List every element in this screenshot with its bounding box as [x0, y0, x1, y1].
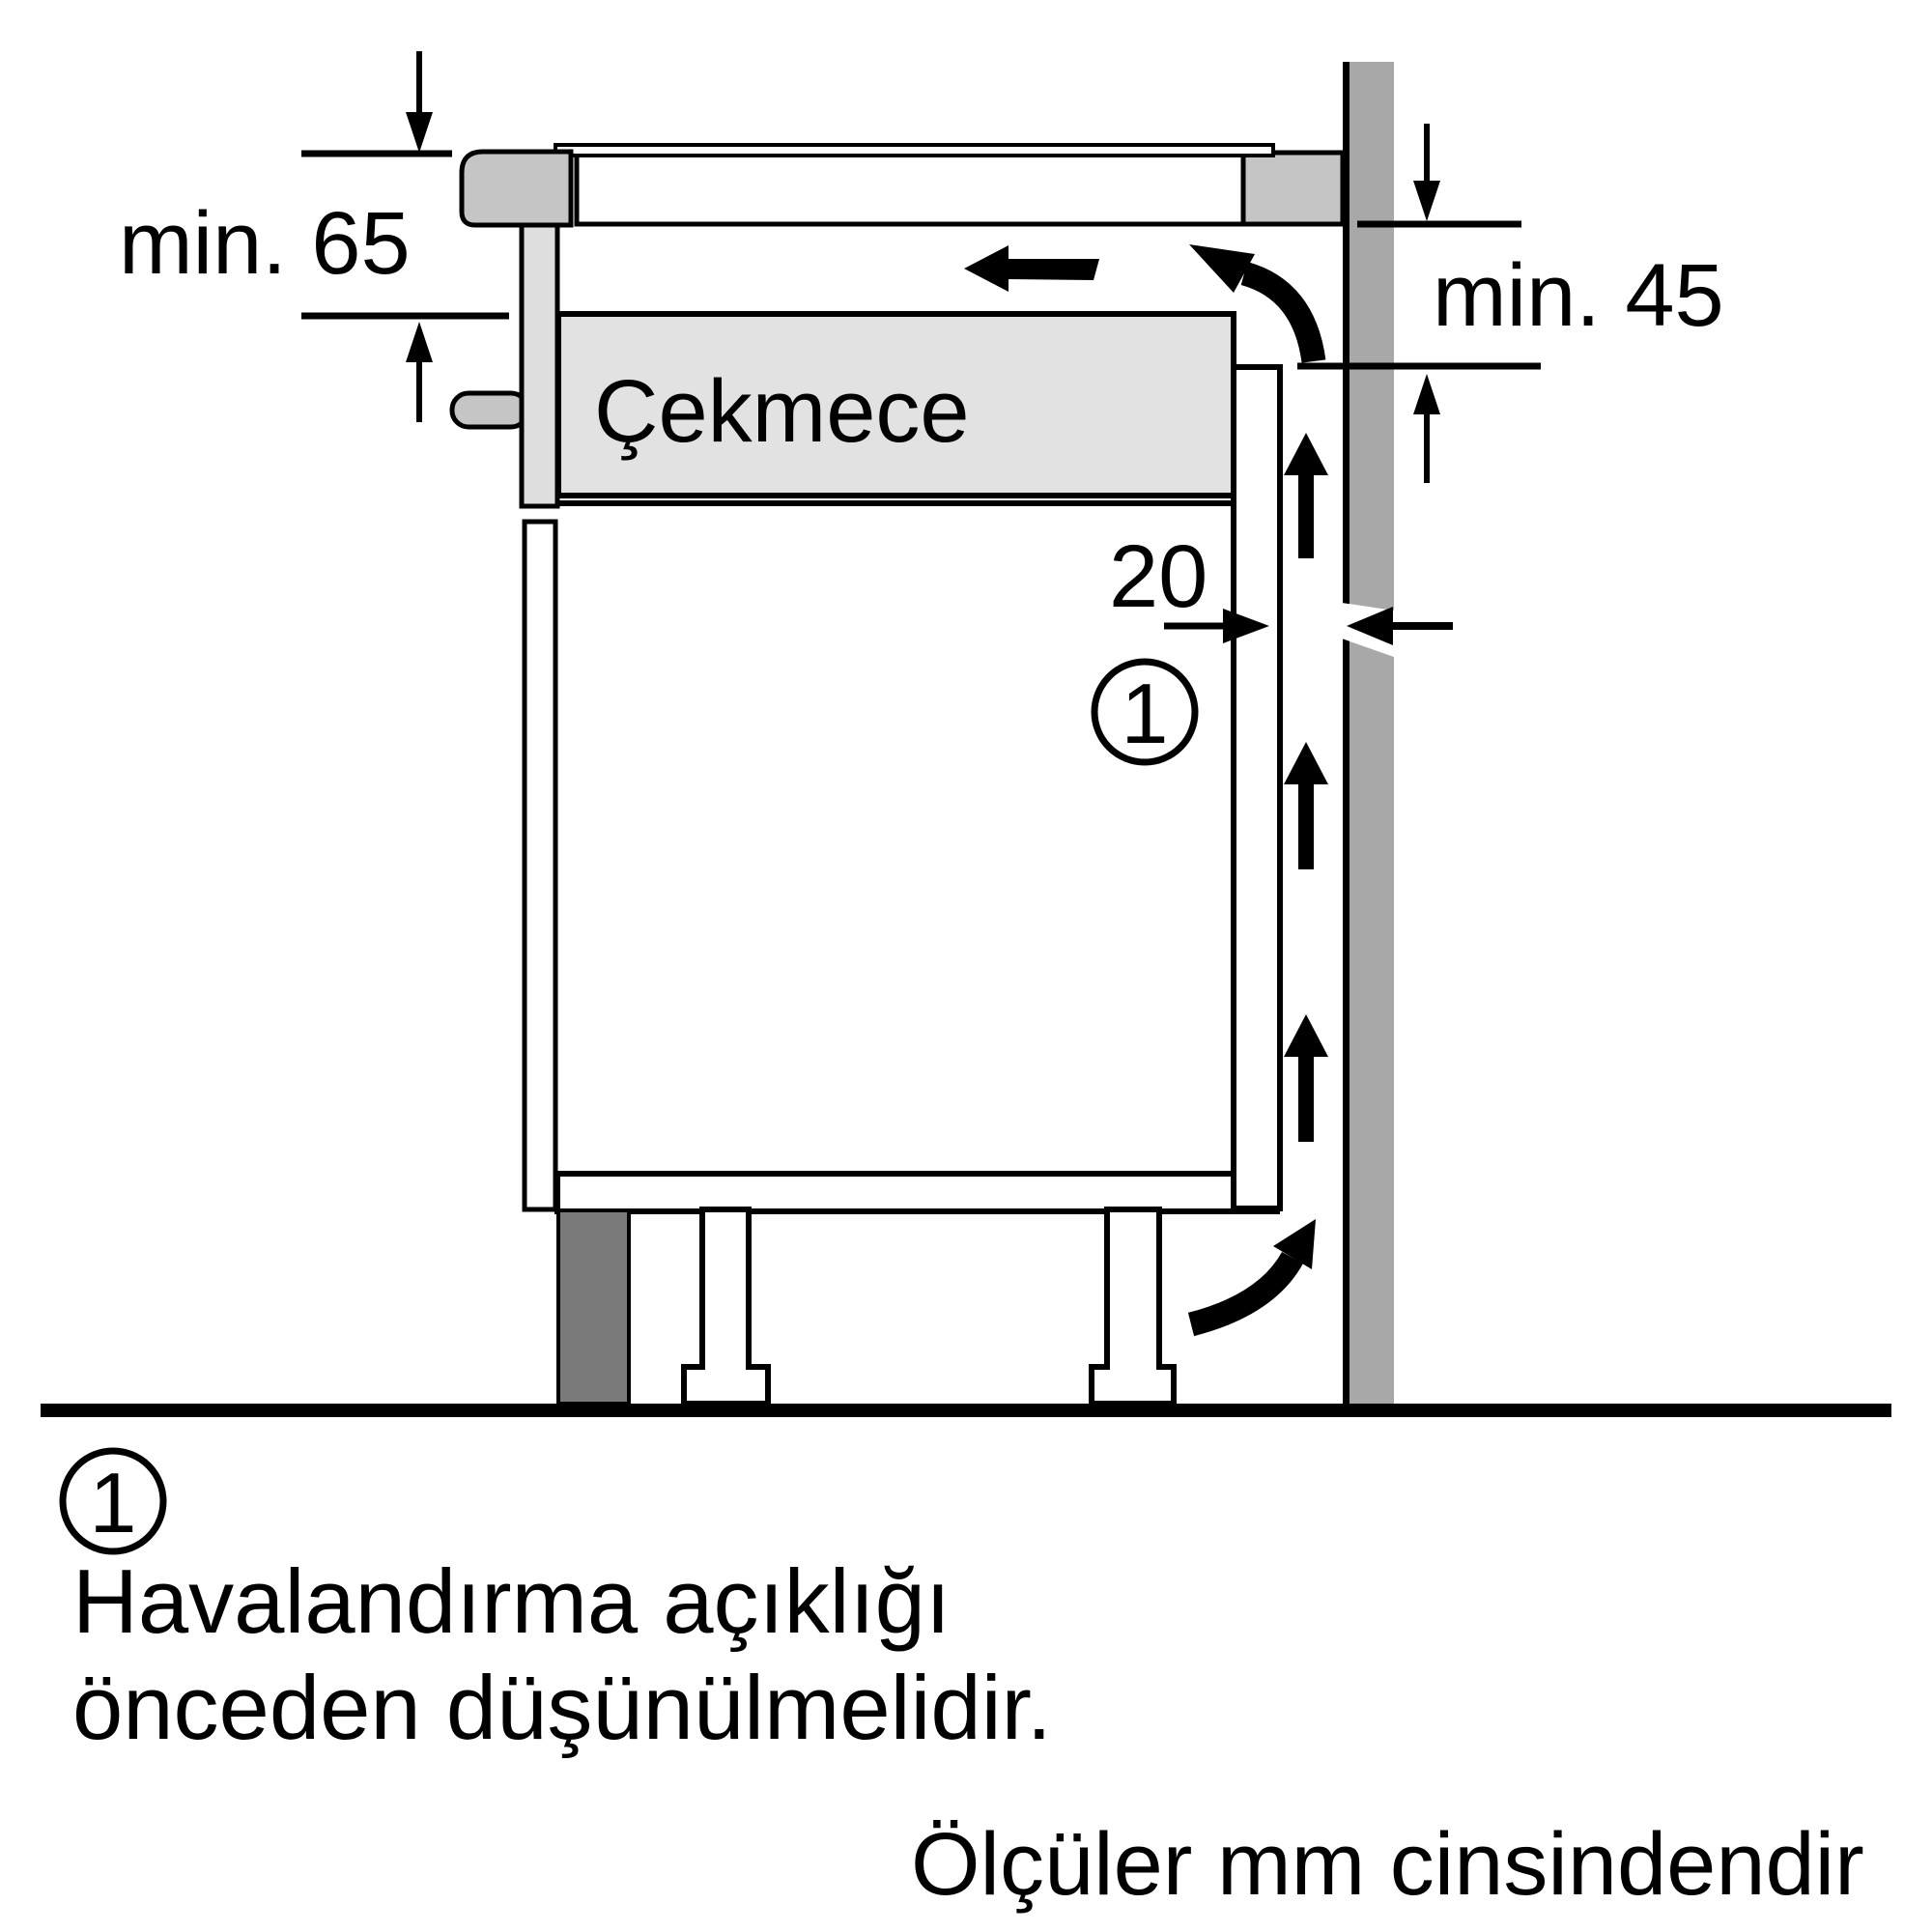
arrow-up-head-icon — [1413, 374, 1440, 414]
arrow-down-head-icon — [1413, 181, 1440, 221]
airflow-arrow-up-3-head-icon — [1284, 1014, 1328, 1057]
leg-front — [684, 1209, 768, 1404]
hob-body — [577, 155, 1346, 224]
leg-rear — [1092, 1209, 1174, 1404]
cabinet-side-panel-upper — [522, 225, 557, 506]
dim-min45-label: min. 45 — [1433, 246, 1724, 345]
mounting-peg — [452, 393, 527, 427]
airflow-arrow-up-1-icon — [1298, 473, 1314, 558]
legend-note-line-2: önceden düşünülmelidir. — [72, 1657, 1052, 1758]
hob-installation-diagram: Çekmece min. 65 min. 45 20 — [0, 0, 1932, 1932]
legend-note-line-1: Havalandırma açıklığı — [72, 1550, 951, 1652]
airflow-arrow-up-2-icon — [1298, 782, 1314, 869]
plinth-board — [558, 1210, 629, 1404]
callout-1-marker: 1 — [1094, 662, 1195, 762]
hob-rear-trim — [1243, 153, 1343, 224]
airflow-arrow-up-3-icon — [1298, 1055, 1314, 1142]
ground-line — [41, 1404, 1891, 1417]
cabinet-back-panel — [1234, 367, 1280, 1208]
dim-20-label: 20 — [1109, 527, 1207, 626]
drawer-shelf-line — [558, 500, 1234, 506]
installation-diagram-page: Çekmece min. 65 min. 45 20 — [0, 0, 1932, 1932]
drawer-label: Çekmece — [594, 362, 970, 461]
legend-callout-number: 1 — [90, 1455, 137, 1550]
airflow-curve-bottom — [1191, 1258, 1293, 1324]
hob-assembly — [462, 145, 1346, 225]
legend: 1 Havalandırma açıklığı önceden düşünülm… — [63, 1451, 1864, 1914]
airflow-arrow-up-1-head-icon — [1284, 433, 1328, 475]
callout-number: 1 — [1122, 666, 1169, 761]
airflow-arrow-left-icon — [964, 245, 1099, 292]
dim-min65-label: min. 65 — [119, 194, 411, 293]
wall-surface — [1350, 62, 1394, 1409]
wall — [1343, 62, 1394, 1409]
airflow-curve-top — [1244, 273, 1314, 361]
airflow-arrow-up-2-head-icon — [1284, 742, 1328, 784]
cabinet-side-panel-lower — [525, 522, 555, 1209]
dimension-min65: min. 65 — [119, 51, 509, 422]
units-note: Ölçüler mm cinsindendir — [911, 1815, 1864, 1914]
cabinet-bottom-panel — [557, 1174, 1277, 1211]
cabinet: Çekmece — [452, 225, 1280, 1404]
wall-outline — [1343, 62, 1350, 1409]
arrow-up-head-icon — [406, 322, 433, 362]
arrow-down-head-icon — [406, 112, 433, 153]
hob-glass-top — [555, 145, 1273, 156]
hob-front-trim — [462, 152, 571, 225]
